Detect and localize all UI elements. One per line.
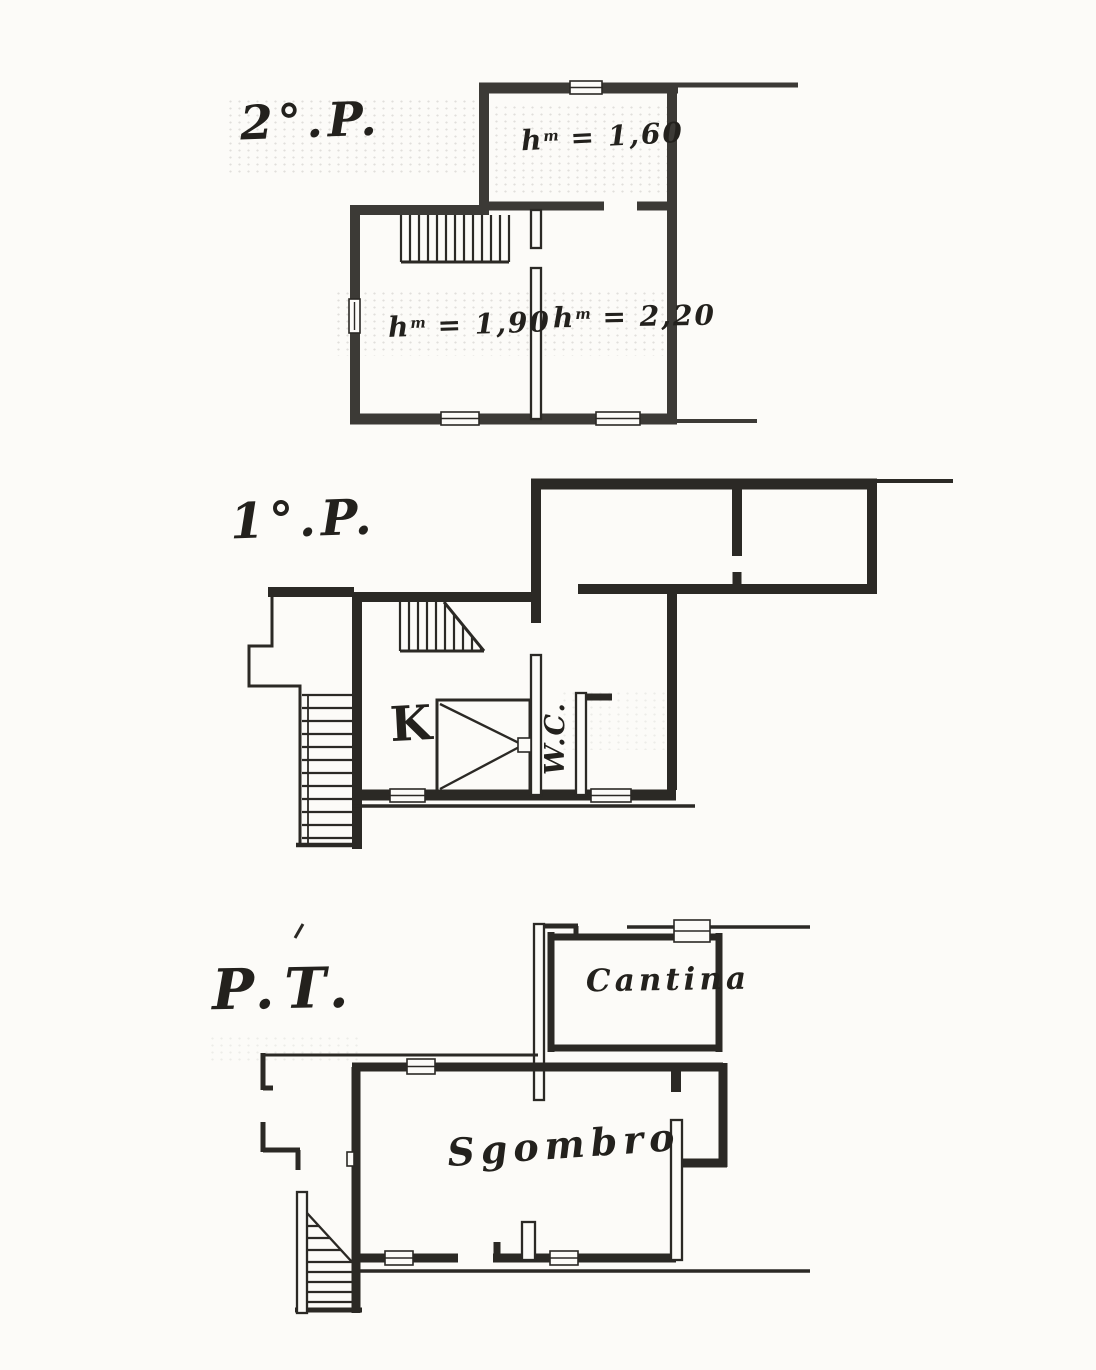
stair-rail [297,1192,307,1313]
wc-wall [576,693,586,795]
floor-label-second: 2°.P. [239,92,382,152]
partition-wall [531,268,541,419]
height-symbol: h [520,123,544,157]
floor-label-first: 1°.P. [229,487,377,550]
height-symbol: h [553,301,576,334]
corridor-wall [534,924,544,1100]
room-label-wc: W.C. [540,701,571,775]
shower-slope-lines [440,704,523,789]
room-label-kitchen: K [389,695,434,753]
stair-treads [302,695,352,838]
height-unit-sup: m [543,127,559,145]
wall-notch [347,1152,354,1166]
shower-tray [437,700,530,793]
landing-outline [249,597,300,845]
room-label-cellar: Cantina [586,961,751,1000]
stair-treads [307,1226,352,1302]
height-value: = 1,90 [425,305,551,342]
height-unit-sup: m [575,306,591,323]
stair-treads [401,215,509,262]
floor-plan-sheet: 2°.P. 1°.P. P.T. hm = 1,60 hm = 1,90 hm … [0,0,1096,1370]
wall-stub [531,210,541,248]
height-value: = 1,60 [558,116,685,156]
stair-treads [400,602,481,651]
pier-stub [522,1222,535,1260]
height-value: = 2,20 [590,299,716,334]
drain-box [518,738,531,752]
height-annotation-left-room: hm = 1,90 [387,305,551,344]
height-unit-sup: m [410,315,426,333]
height-annotation-right-room: hm = 2,20 [553,299,716,335]
stray-mark [295,924,303,938]
floor-label-ground: P.T. [211,955,358,1024]
height-symbol: h [387,310,410,344]
